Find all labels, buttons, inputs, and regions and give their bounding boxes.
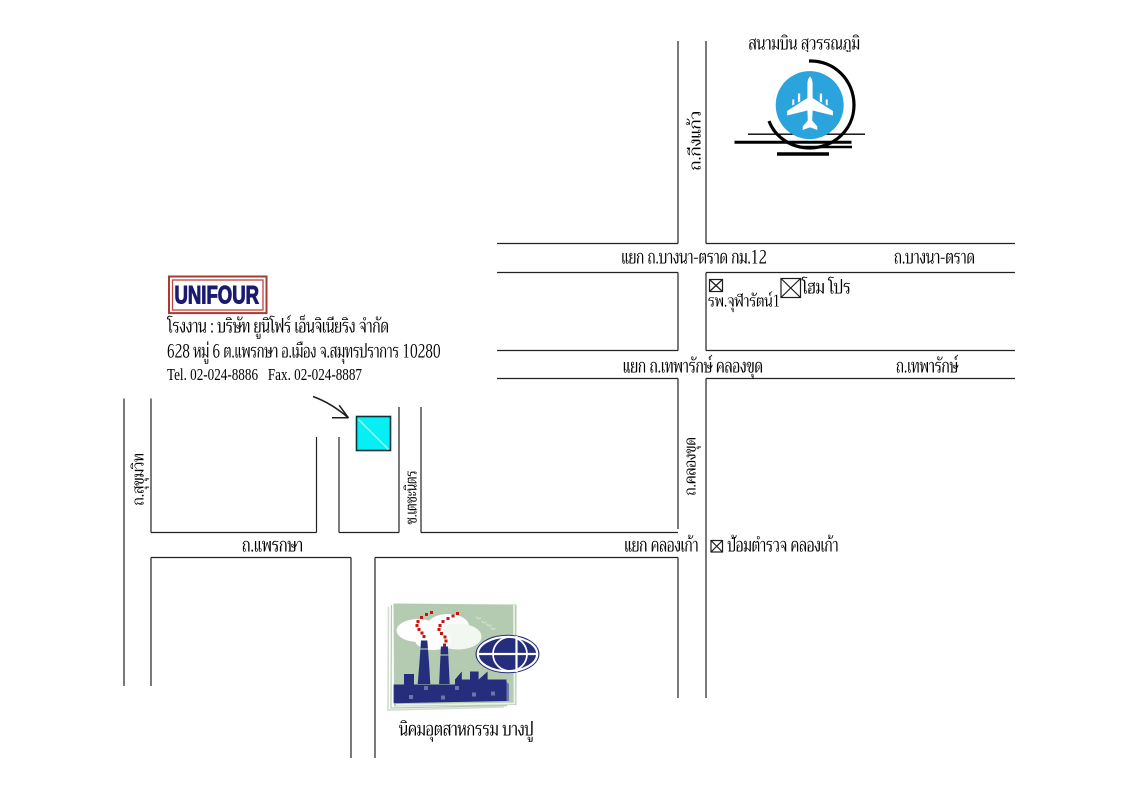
svg-text:Tel. 02-024-8886 Fax. 02-024: Tel. 02-024-8886 Fax. 02-024-8887 [167,365,362,384]
svg-text:UNIFOUR: UNIFOUR [175,282,260,310]
